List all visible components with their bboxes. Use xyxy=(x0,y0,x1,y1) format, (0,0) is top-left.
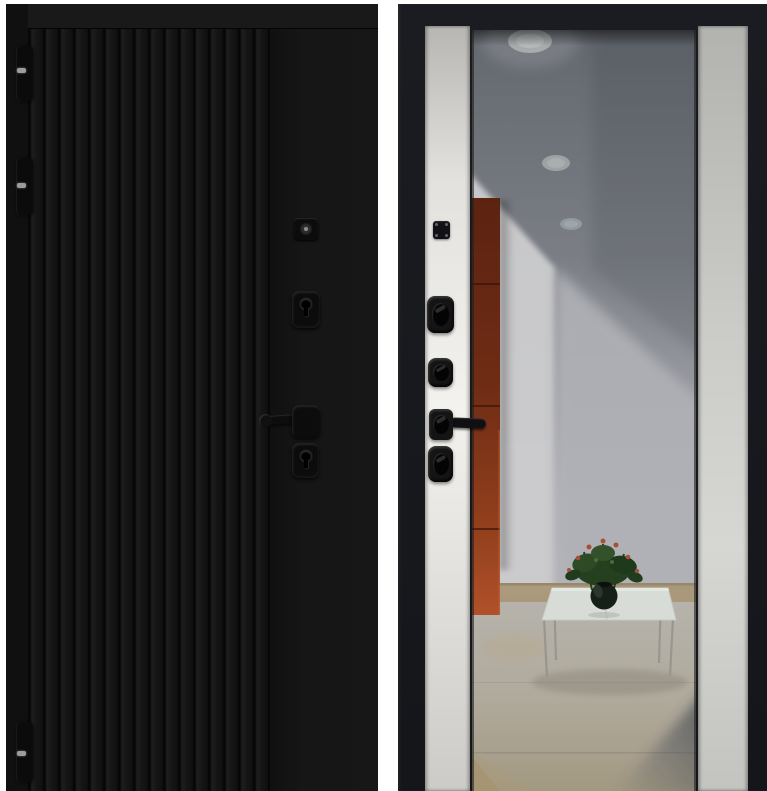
spotlight-3-inner xyxy=(564,221,578,228)
interior-handle-backplate xyxy=(429,409,453,440)
lower-lock-escutcheon xyxy=(292,443,319,478)
hinge-pin xyxy=(17,183,26,188)
keyhole-icon xyxy=(301,451,311,461)
lock-mounting-plate xyxy=(433,221,450,239)
cabinet-seam xyxy=(472,283,500,285)
handle-backplate xyxy=(292,405,320,438)
screw-icon xyxy=(445,234,448,237)
upper-lock-escutcheon xyxy=(292,291,320,328)
exterior-door-panel xyxy=(6,4,378,791)
product-photo xyxy=(0,0,767,791)
floor-warm-patch xyxy=(483,635,547,661)
hinge-stile xyxy=(6,4,28,791)
cabinet-shadow xyxy=(500,200,513,570)
door-viewer-cylinder xyxy=(294,218,318,240)
viewer-lens-icon xyxy=(300,223,312,235)
thumbturn-upper xyxy=(427,296,454,333)
interior-door-panel xyxy=(398,4,767,791)
interior-side-panel-right xyxy=(698,26,748,791)
lock-stile xyxy=(270,29,378,791)
cabinet-seam xyxy=(472,528,500,530)
mirror-reflection xyxy=(472,30,696,791)
fluted-panel xyxy=(28,29,270,791)
hinge-top xyxy=(16,45,33,101)
mirror-right-seam xyxy=(694,30,696,791)
thumbturn-middle xyxy=(428,358,453,387)
cabinet-seam xyxy=(472,405,500,407)
keyhole-icon xyxy=(301,299,311,309)
hinge-middle xyxy=(16,157,33,215)
screw-icon xyxy=(435,234,438,237)
cabinet-edge-highlight xyxy=(499,430,501,615)
table-shadow xyxy=(532,669,688,695)
hinge-pin xyxy=(17,68,26,73)
screw-icon xyxy=(445,223,448,226)
exterior-top-rail xyxy=(6,4,378,29)
hinge-pin xyxy=(17,751,26,756)
screw-icon xyxy=(435,223,438,226)
vase-reflection xyxy=(588,612,620,618)
thumbturn-lower xyxy=(428,446,453,482)
mirror-insert xyxy=(472,30,696,791)
hinge-bottom xyxy=(16,722,33,782)
mirror-left-seam xyxy=(472,30,474,791)
mirror-top-shadow xyxy=(472,30,696,46)
spotlight-2-inner xyxy=(547,158,565,168)
interior-lever-handle xyxy=(450,417,486,428)
